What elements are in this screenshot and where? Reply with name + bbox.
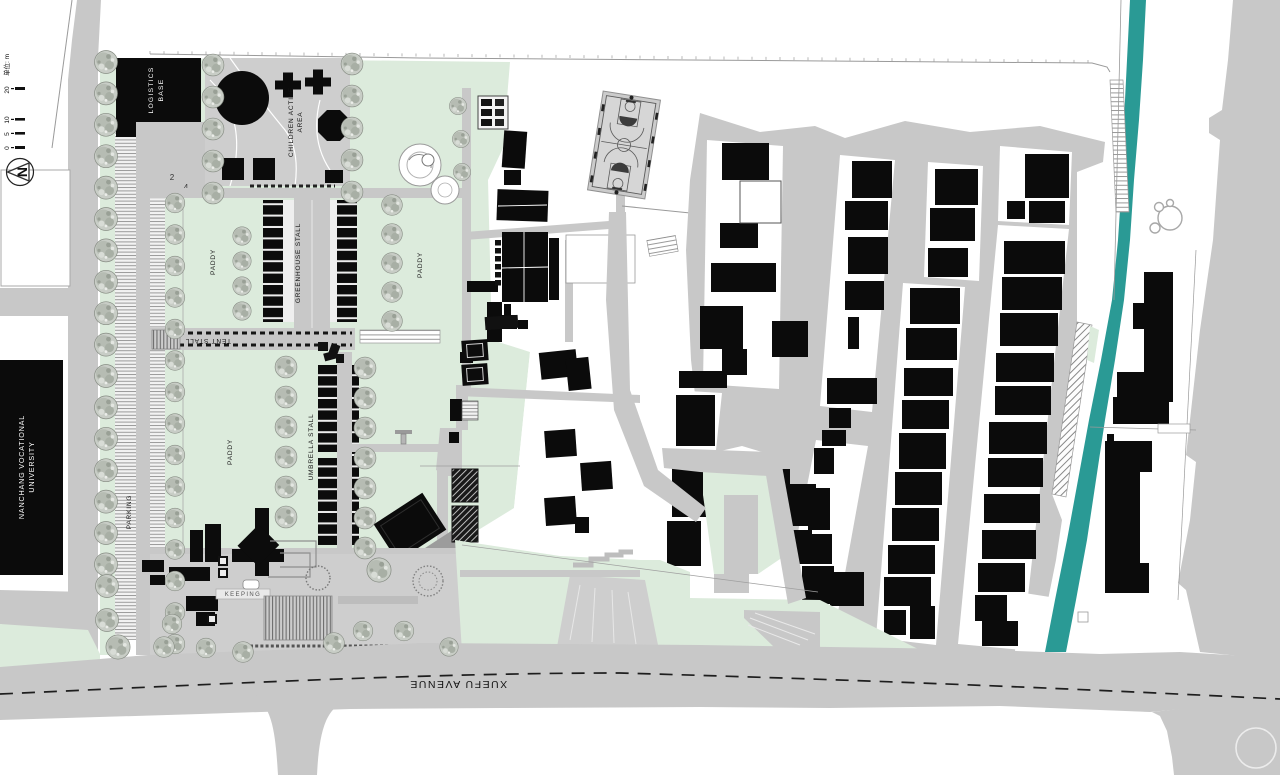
svg-text:10: 10 — [4, 116, 11, 124]
svg-text:NANCHANG VOCATIONAL: NANCHANG VOCATIONAL — [17, 415, 26, 519]
svg-text:KEEPING: KEEPING — [225, 592, 261, 598]
svg-text:TENT STALL: TENT STALL — [185, 337, 231, 344]
svg-text:GREENHOUSE STALL: GREENHOUSE STALL — [295, 223, 302, 303]
svg-text:PADDY: PADDY — [227, 439, 234, 465]
svg-text:0: 0 — [4, 146, 11, 150]
svg-text:2: 2 — [170, 173, 175, 182]
svg-text:LOGISTICS: LOGISTICS — [148, 66, 155, 113]
svg-text:PADDY: PADDY — [417, 252, 424, 278]
svg-text:20: 20 — [4, 86, 11, 94]
svg-text:XUEFU AVENUE: XUEFU AVENUE — [409, 678, 507, 690]
svg-text:PADDY: PADDY — [210, 249, 217, 275]
svg-text:PARKING: PARKING — [126, 495, 133, 529]
svg-text:AREA: AREA — [297, 112, 304, 133]
svg-text:5: 5 — [4, 132, 11, 136]
svg-text:UNIVERSITY: UNIVERSITY — [27, 441, 36, 492]
svg-text:单位: m: 单位: m — [2, 54, 11, 76]
svg-text:BASE: BASE — [158, 79, 165, 102]
svg-text:UMBRELLA STALL: UMBRELLA STALL — [308, 413, 315, 480]
svg-text:N: N — [14, 167, 30, 177]
svg-text:CHILDREN ACTIVE: CHILDREN ACTIVE — [288, 87, 295, 157]
